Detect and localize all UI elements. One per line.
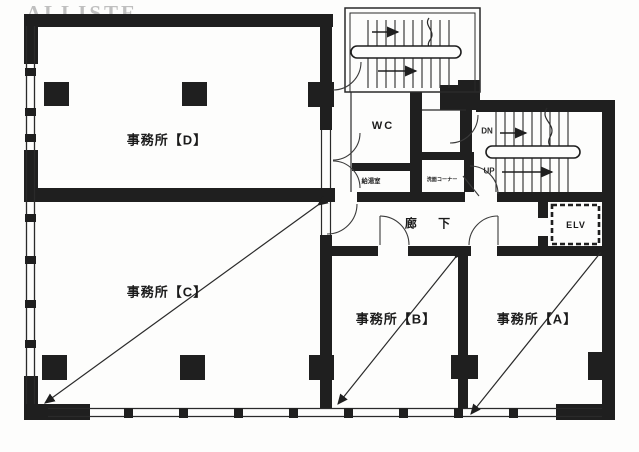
wash-corner-label: 洗面コーナー [427,175,458,183]
stairs-top [345,8,480,92]
stair-up-label: UP [483,167,494,176]
office-a-label: 事務所【A】 [497,309,577,328]
elevator-label: ELV [566,220,586,230]
floorplan-drawing [0,0,639,452]
column [588,352,614,380]
office-d-label: 事務所【D】 [127,130,207,149]
office-c-label: 事務所【C】 [127,282,207,301]
column [309,355,334,380]
column [308,82,334,107]
column [180,355,205,380]
corridor-label: 廊 下 [405,215,459,232]
diagonal-arrow-b [338,258,455,404]
wc-label: WC [372,120,394,132]
stairs-right [486,108,580,192]
column [44,82,69,106]
window-mullions [25,68,518,418]
floorplan-page: ALLISTE [0,0,639,452]
door-arc [333,62,361,90]
stair-landing-rail [351,46,461,58]
column [42,355,67,380]
office-b-label: 事務所【B】 [356,309,436,328]
stair-landing-rail [486,146,580,158]
kitchenette-label: 給湯室 [362,177,381,186]
diagonal-arrow-a [471,252,601,414]
door-arc [333,133,360,160]
column [182,82,207,106]
door-arc [327,204,357,234]
stair-down-label: DN [481,127,493,136]
column [451,355,478,379]
door-arc [469,216,498,245]
